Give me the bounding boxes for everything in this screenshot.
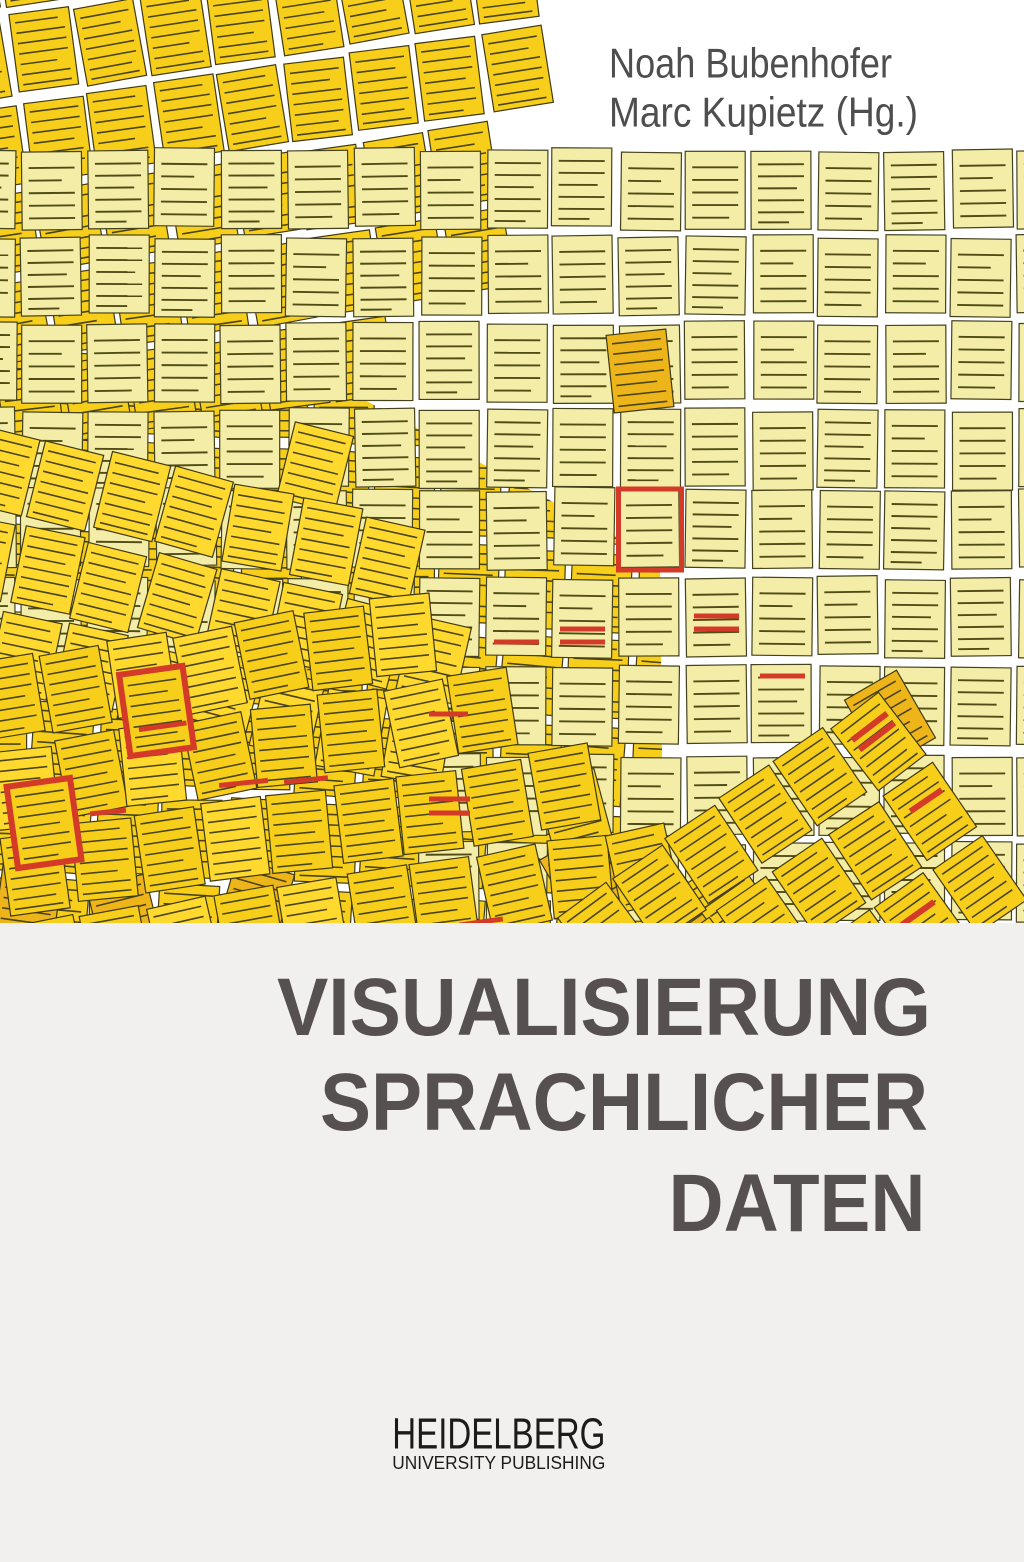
svg-text:Noah Bubenhofer: Noah Bubenhofer	[609, 39, 892, 86]
svg-text:SPRACHLICHER: SPRACHLICHER	[320, 1057, 928, 1148]
svg-text:HEIDELBERG: HEIDELBERG	[392, 1410, 605, 1458]
svg-text:Marc Kupietz (Hg.): Marc Kupietz (Hg.)	[609, 89, 918, 136]
svg-text:VISUALISIERUNG: VISUALISIERUNG	[277, 962, 931, 1053]
svg-text:UNIVERSITY PUBLISHING: UNIVERSITY PUBLISHING	[392, 1453, 605, 1474]
svg-text:DATEN: DATEN	[669, 1158, 926, 1249]
